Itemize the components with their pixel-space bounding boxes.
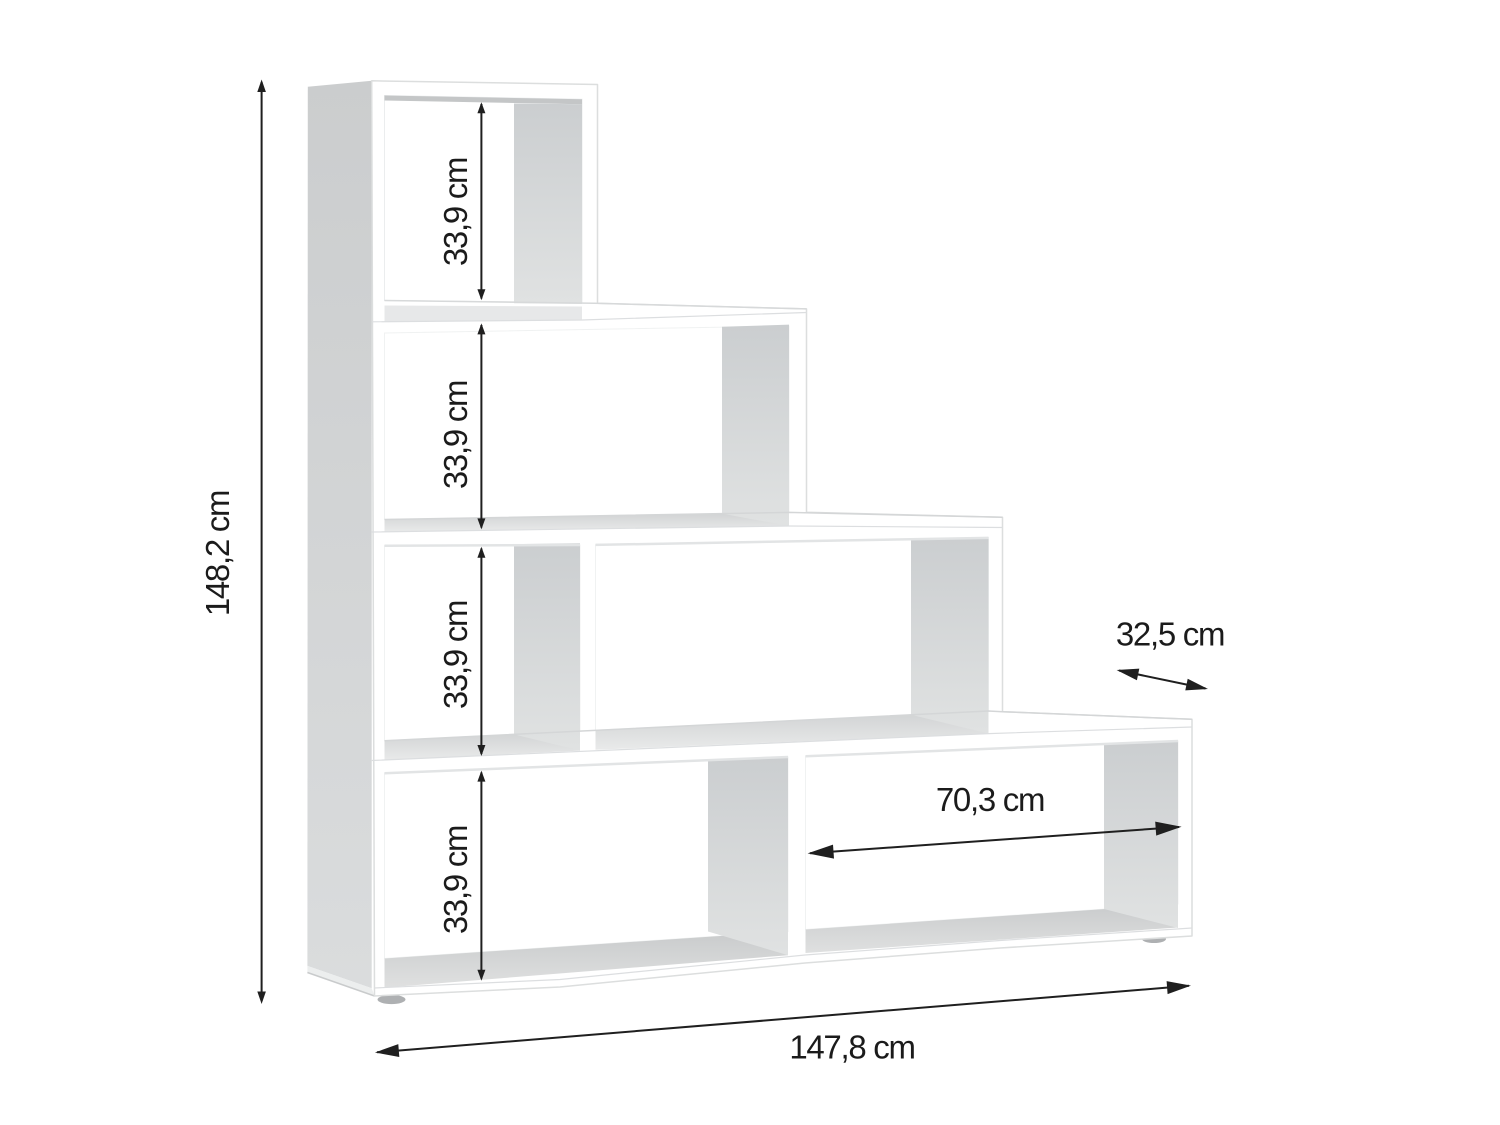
svg-text:32,5 cm: 32,5 cm: [1116, 616, 1224, 653]
svg-text:70,3 cm: 70,3 cm: [936, 781, 1044, 818]
svg-text:147,8 cm: 147,8 cm: [789, 1029, 914, 1066]
svg-text:33,9 cm: 33,9 cm: [437, 826, 474, 934]
svg-text:33,9 cm: 33,9 cm: [437, 381, 474, 489]
svg-text:33,9 cm: 33,9 cm: [437, 601, 474, 709]
svg-text:148,2 cm: 148,2 cm: [199, 491, 236, 616]
svg-text:33,9 cm: 33,9 cm: [437, 158, 474, 266]
